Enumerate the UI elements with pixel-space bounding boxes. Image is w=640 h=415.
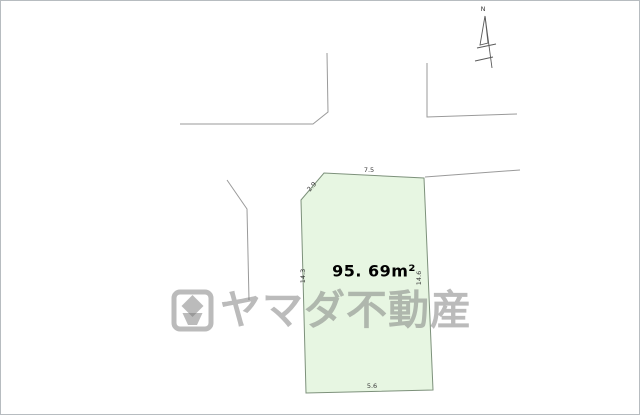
dim-label-bottom: 5.6 [367,383,377,390]
site-plan-canvas: N 7.5 2.9 14.3 14.6 5.6 95. 69m² ヤマダ不動産 [0,0,640,415]
dim-label-top: 7.5 [364,167,374,174]
area-label: 95. 69m² [332,262,416,281]
road-line-parcel-extension [425,170,520,177]
road-line-top-left [180,53,328,124]
road-line-left [227,180,249,300]
dim-label-left: 14.3 [300,269,307,283]
road-line-top-right-corner [427,63,517,117]
north-arrow-icon [475,16,496,68]
north-label: N [481,6,486,13]
parcel-polygon [301,173,433,393]
dim-label-right: 14.6 [416,271,423,285]
site-plan-drawing [0,0,640,415]
